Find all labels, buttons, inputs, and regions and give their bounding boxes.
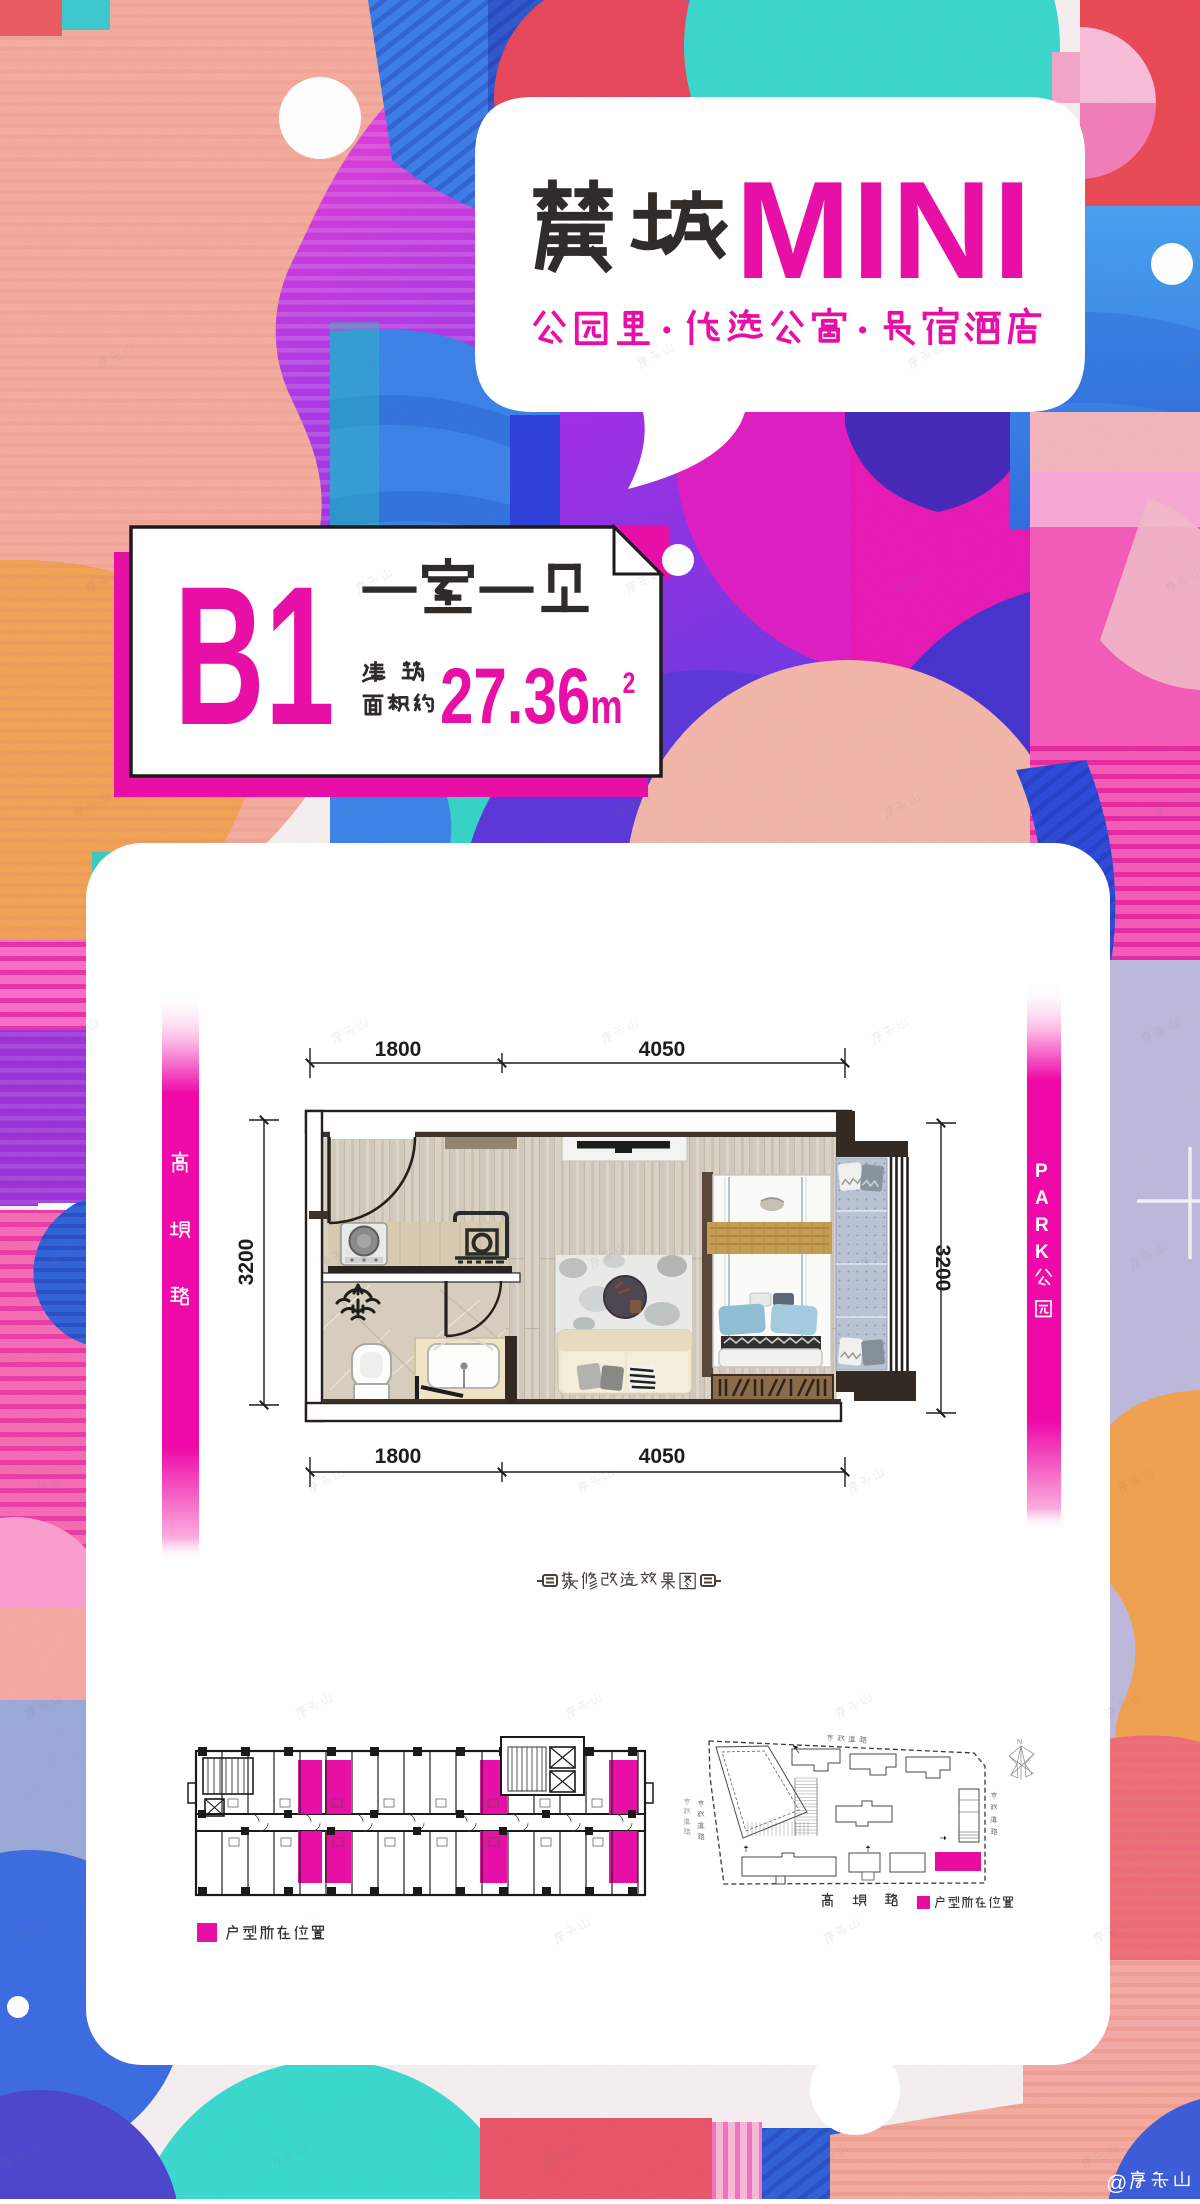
svg-text:3200: 3200 xyxy=(235,1239,258,1286)
svg-text:A: A xyxy=(1035,1188,1049,1209)
svg-text:1800: 1800 xyxy=(375,1038,422,1061)
svg-text:P: P xyxy=(1035,1161,1048,1182)
svg-text:MINI: MINI xyxy=(735,153,1032,308)
svg-text:4050: 4050 xyxy=(639,1445,686,1468)
svg-text:1800: 1800 xyxy=(375,1445,422,1468)
svg-text:@: @ xyxy=(1106,2172,1127,2195)
svg-text:N: N xyxy=(1017,1739,1022,1746)
svg-text:R: R xyxy=(1035,1215,1049,1236)
svg-text:4050: 4050 xyxy=(639,1038,686,1061)
svg-text:3200: 3200 xyxy=(931,1245,954,1292)
svg-text:K: K xyxy=(1035,1242,1049,1263)
svg-text:B1: B1 xyxy=(174,546,335,767)
